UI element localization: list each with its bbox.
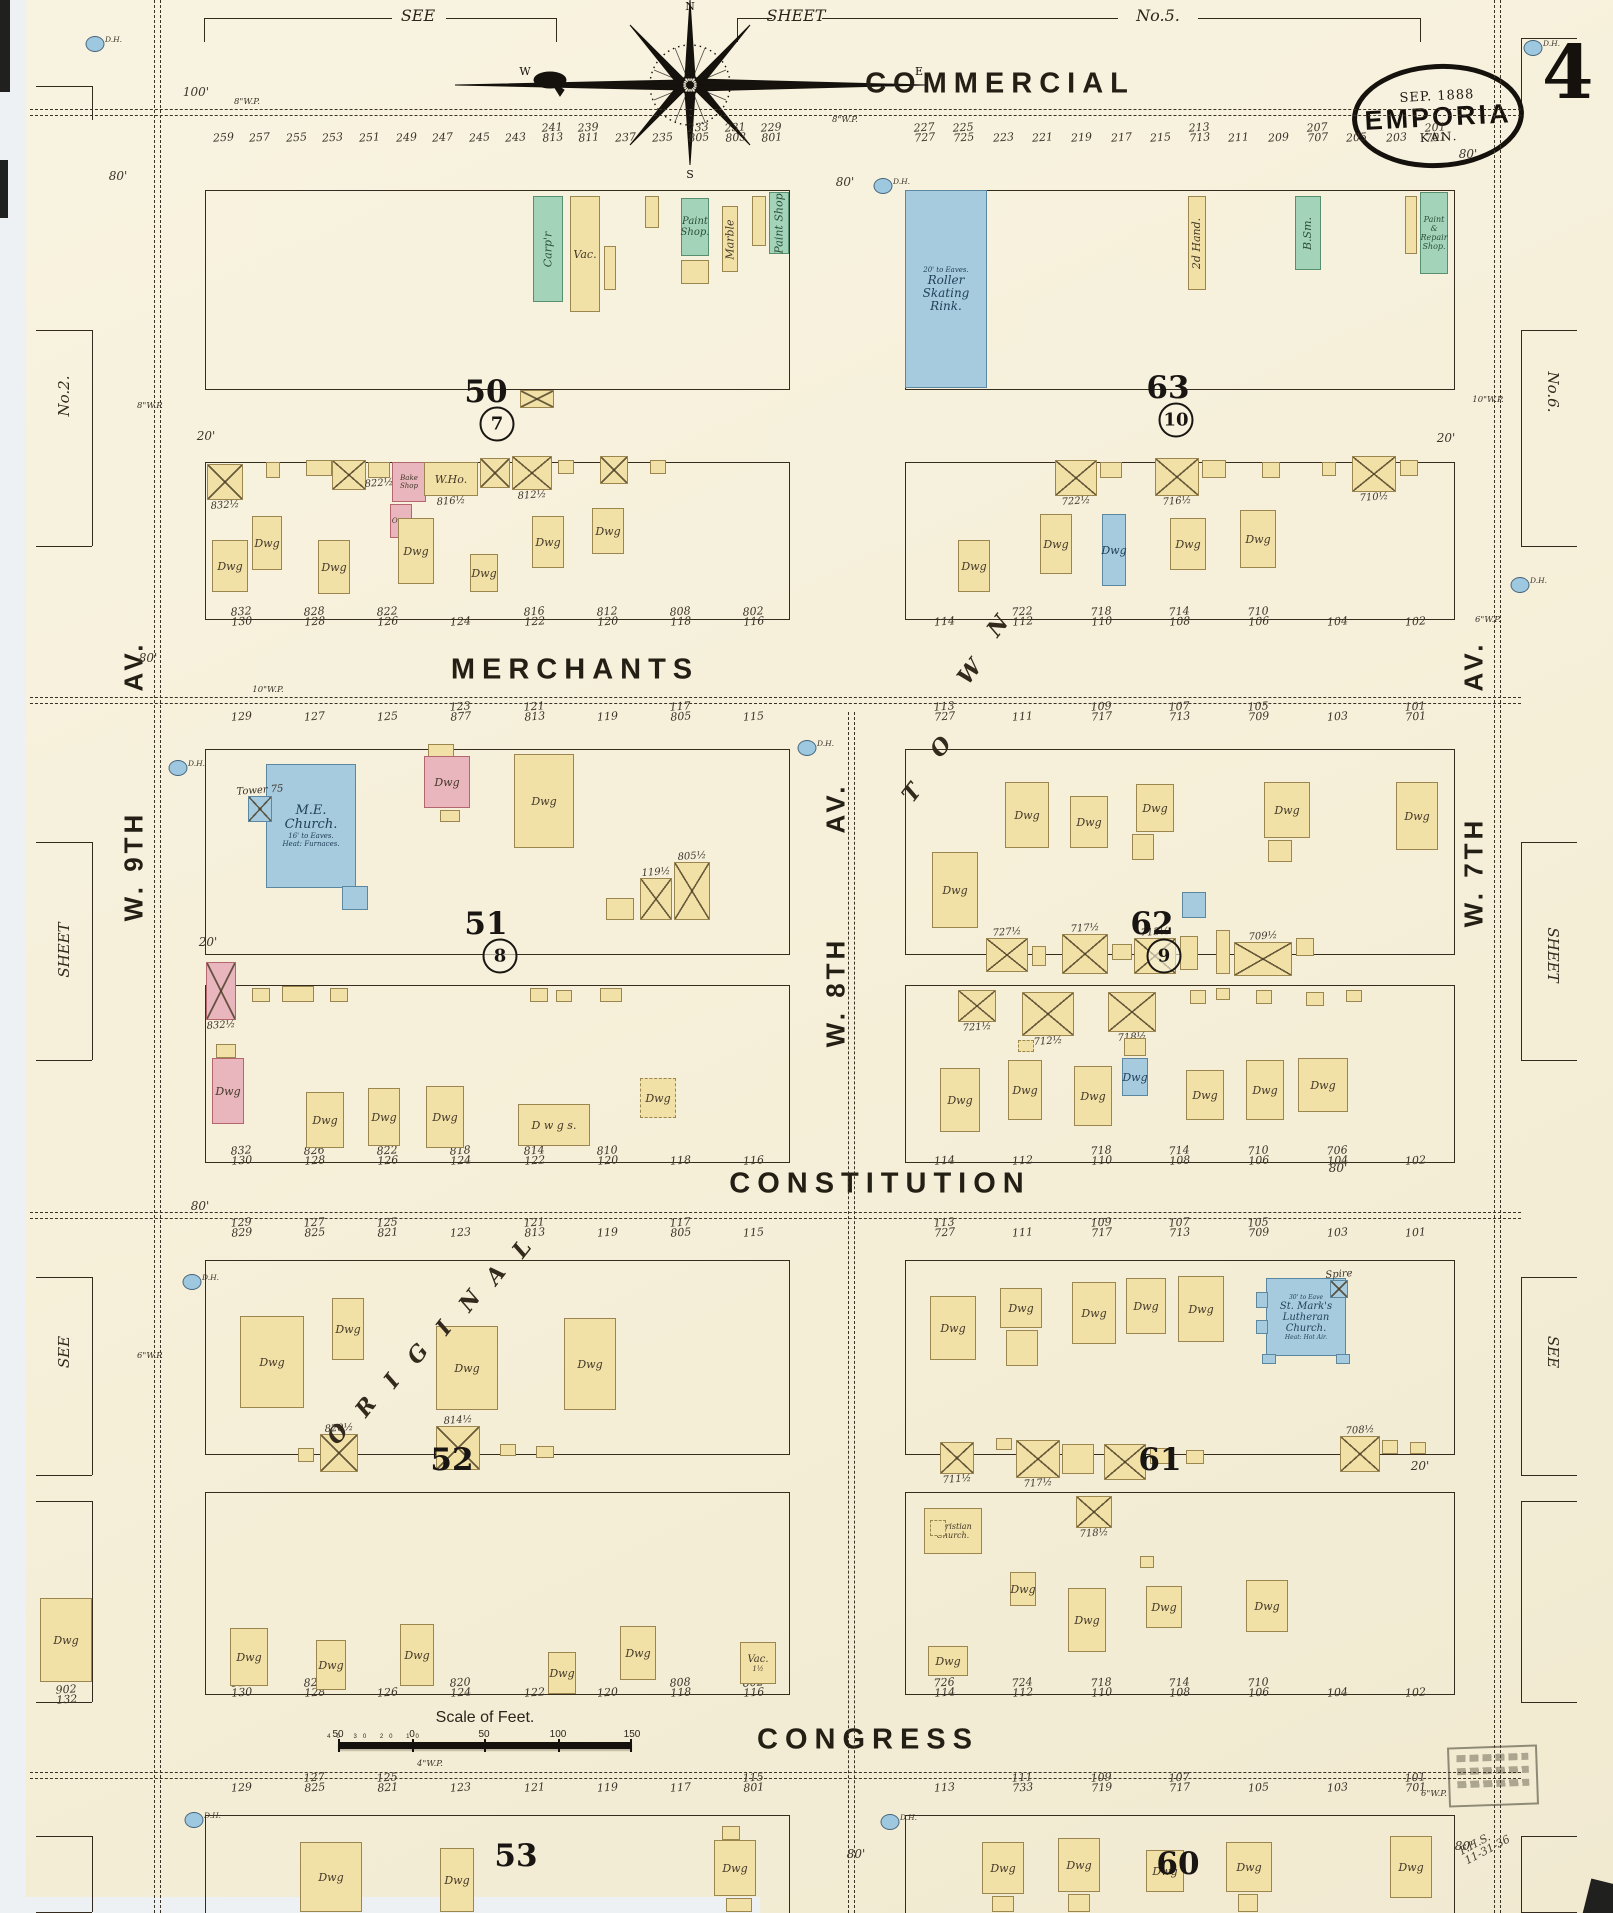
double-hydrant-label: D.H.: [204, 1811, 221, 1820]
dimension-label: 80': [847, 1847, 866, 1861]
address-number: 129: [231, 711, 253, 722]
water-pipe-label: 8"W.P.: [234, 97, 260, 107]
building: [1018, 1040, 1034, 1052]
building-address-label: 718½: [1079, 1527, 1108, 1540]
building: [1062, 1444, 1094, 1474]
building-address-label: 712½: [1033, 1035, 1062, 1048]
building-address-label: 721½: [962, 1021, 991, 1034]
address-number: 243: [505, 132, 527, 143]
street-label-merchants: MERCHANTS: [451, 654, 699, 687]
address-number: 255: [286, 132, 308, 143]
building-dwg: Dwg: [514, 754, 574, 848]
dimension-label: 20': [1437, 431, 1456, 445]
building: [1296, 938, 1314, 956]
building-label: Church.: [285, 818, 338, 832]
x-mark: [207, 963, 235, 1019]
x-mark: [249, 797, 271, 821]
building-label: W.Ho.: [435, 474, 467, 485]
compass-w: W: [519, 65, 531, 78]
building-address-label: 816½: [436, 495, 465, 508]
address-number: 808118: [669, 606, 691, 627]
edge-bracket-left-tick: [36, 1060, 92, 1061]
building-label: Dwg: [935, 1656, 960, 1667]
building-address-label: 832½: [206, 1019, 235, 1032]
address-number: 219: [1071, 132, 1093, 143]
building: [1216, 930, 1230, 974]
building-dwg: Dwg: [928, 1646, 968, 1676]
outbuilding: [332, 460, 366, 490]
building-dwg: Dwg: [316, 1640, 346, 1690]
building-label: Paint &: [1421, 215, 1447, 233]
building-label: Dwg: [940, 1323, 965, 1334]
building-dwg: Dwg: [714, 1840, 756, 1896]
double-hydrant-dot: [798, 740, 817, 756]
address-number: 714108: [1169, 1677, 1191, 1698]
address-number: 129: [231, 1782, 253, 1793]
water-pipe-label: 4"W.P.: [417, 1759, 443, 1769]
address-number: 109717: [1090, 701, 1112, 722]
address-number: 810120: [596, 1145, 618, 1166]
building-label: Paint: [682, 216, 708, 227]
building-label: 30' to Eave: [1289, 1294, 1323, 1301]
building-label: Vac.: [573, 249, 596, 260]
double-hydrant-dot: [1511, 577, 1530, 593]
building-label: Dwg: [312, 1115, 337, 1126]
building-label: Vac.: [747, 1654, 768, 1665]
building-label: Dwg: [1151, 1602, 1176, 1613]
building-dwg: Dwg: [1246, 1580, 1288, 1632]
building: [530, 988, 548, 1002]
building-label: Dwg: [1043, 539, 1068, 550]
address-number: 225725: [953, 122, 975, 143]
building-label: Dwg: [432, 1112, 457, 1123]
building-dwg: Dwg: [1396, 782, 1438, 850]
building-label: Dwg: [1398, 1862, 1423, 1873]
building-paint-shop: PaintShop.: [681, 198, 709, 256]
edge-bracket-right: [1521, 842, 1522, 1060]
outbuilding: 832½: [206, 962, 236, 1020]
address-row: 114112718110714108710106706104102: [905, 1142, 1455, 1166]
x-mark: [959, 991, 995, 1021]
x-mark: [1353, 457, 1395, 491]
outbuilding: 708½: [1340, 1436, 1380, 1472]
building-label: Roller: [928, 274, 965, 287]
address-number: 114: [933, 1155, 955, 1166]
building-dwg: Dwg: [400, 1624, 434, 1686]
building-label: Dwg: [947, 1095, 972, 1106]
address-number: 125821: [377, 1217, 399, 1238]
building-label: Dwg: [1101, 545, 1126, 556]
address-number: 223: [992, 132, 1014, 143]
address-number: 102: [1405, 1687, 1427, 1698]
edge-label-see: SEE: [55, 1336, 73, 1368]
building: [342, 886, 368, 910]
building-address-label: 717½: [1023, 1477, 1052, 1490]
building: [1006, 1330, 1038, 1366]
building-dwg: Dwg: [398, 518, 434, 584]
building: [1032, 946, 1046, 966]
building-label: Dwg: [215, 1086, 240, 1097]
building-dwg: Dwg: [1246, 1060, 1284, 1120]
outbuilding: 717½: [1016, 1440, 1060, 1478]
scan-mark: [0, 0, 10, 92]
building: [216, 1044, 236, 1058]
block-outline-51-lower: [205, 985, 790, 1163]
building: [650, 460, 666, 474]
building: [1100, 462, 1122, 478]
edge-label-no6: No.6.: [1544, 372, 1562, 413]
address-number: 107713: [1169, 1217, 1191, 1238]
building-label: Rink.: [930, 300, 962, 313]
building: [266, 462, 280, 478]
building: [1124, 1038, 1146, 1056]
address-number: 107717: [1169, 1772, 1191, 1793]
outbuilding: 805½: [674, 862, 710, 920]
edge-bracket-right: [1521, 330, 1522, 546]
building-dwg: Dwg: [440, 1848, 474, 1912]
edge-bracket-left-tick: [36, 1501, 92, 1502]
building-address-label: 722½: [1061, 495, 1090, 508]
building-dwg: Dwg: [982, 1842, 1024, 1894]
building-label: Bake: [400, 474, 418, 482]
x-mark: [1023, 993, 1073, 1035]
double-hydrant-label: D.H.: [105, 35, 122, 44]
building: [1400, 460, 1418, 476]
building-label: D w g s.: [532, 1120, 577, 1131]
water-pipe-label: 10"W.P.: [252, 685, 283, 695]
x-mark: [987, 939, 1027, 971]
building-label: Dwg: [1274, 805, 1299, 816]
street-line-w7th: [1494, 0, 1501, 1913]
plat-letter: W: [952, 654, 988, 689]
edge-bracket-right-tick: [1521, 842, 1577, 843]
address-number: 201701: [1424, 122, 1446, 143]
building-label: 1½: [752, 1665, 763, 1673]
building-label: Heat: Hot Air.: [1285, 1334, 1327, 1341]
address-number: 724112: [1012, 1677, 1034, 1698]
building-dwg: Dwg: [1264, 782, 1310, 838]
street-label-w9th: W. 9TH: [119, 811, 150, 922]
address-number: 104: [1326, 1687, 1348, 1698]
address-row: 129127825125821123121119117115801: [205, 1769, 790, 1793]
address-number: 101701: [1404, 701, 1426, 722]
address-number: 718110: [1090, 1677, 1112, 1698]
building: [1068, 1894, 1090, 1912]
scan-edge-left: [0, 0, 26, 1913]
address-number: 102: [1405, 1155, 1427, 1166]
address-number: 816122: [523, 606, 545, 627]
address-number: 209: [1267, 132, 1289, 143]
outbuilding: 119½: [640, 878, 672, 920]
address-number: 123877: [450, 701, 472, 722]
building: [1202, 460, 1226, 478]
x-mark: [208, 465, 242, 499]
block-number-61: 61: [1138, 1442, 1181, 1478]
building: [930, 1520, 946, 1536]
double-hydrant-label: D.H.: [202, 1273, 219, 1282]
top-bracket: [1198, 18, 1420, 19]
dimension-label: 80': [1459, 147, 1478, 161]
building-dwg: Dwg: [1126, 1278, 1166, 1334]
address-number: 718110: [1090, 606, 1112, 627]
building-dwg: Dwg: [426, 1086, 464, 1148]
address-number: 105: [1248, 1782, 1270, 1793]
building-label: Dwg: [1188, 1304, 1213, 1315]
address-number: 215: [1150, 132, 1172, 143]
address-number: 710106: [1247, 1145, 1269, 1166]
building: [1336, 1354, 1350, 1364]
building-label: Dwg: [1122, 1072, 1147, 1083]
street-label-av: AV.: [821, 782, 852, 833]
building-label: Dwg: [1133, 1301, 1158, 1312]
building-label: Dwg: [625, 1648, 650, 1659]
address-number: 718110: [1090, 1145, 1112, 1166]
address-number: 233805: [687, 122, 709, 143]
top-ref-no5: No.5.: [1136, 6, 1180, 25]
edge-bracket-right-tick: [1521, 546, 1577, 547]
building-paint-shop: Paint Shop: [769, 192, 789, 254]
dimension-label: 80': [139, 651, 158, 665]
address-number: 111733: [1012, 1772, 1034, 1793]
building-label: Dwg: [53, 1635, 78, 1646]
edge-label-see: SEE: [1544, 1336, 1562, 1368]
scale-tick-label: 100: [550, 1729, 567, 1740]
building-label: M.E.: [295, 804, 326, 818]
double-hydrant-dot: [169, 760, 188, 776]
address-row: 902132: [36, 1681, 96, 1705]
outbuilding: 721½: [958, 990, 996, 1022]
edge-label-sheet: SHEET: [1544, 927, 1562, 982]
building-label: Dwg: [1192, 1090, 1217, 1101]
address-number: 826128: [304, 1145, 326, 1166]
building-dwg: Dwg: [1068, 1588, 1106, 1652]
building-label: Shop: [400, 482, 418, 490]
building-label: Dwg: [1142, 803, 1167, 814]
block-number-50: 50: [464, 374, 507, 410]
block-outline-52-lower: [205, 1492, 790, 1695]
edge-bracket-right-tick: [1521, 1277, 1577, 1278]
building: [996, 1438, 1012, 1450]
building-dwg: Dwg: [230, 1628, 268, 1686]
building: [645, 196, 659, 228]
building: [1262, 462, 1280, 478]
building: [1140, 1556, 1154, 1568]
building-label: Paint Shop: [774, 193, 785, 253]
address-number: 109719: [1090, 1772, 1112, 1793]
building-label: Dwg: [404, 1650, 429, 1661]
building-dwg: Dwg: [306, 1092, 344, 1148]
building-address-label: 832½: [210, 499, 239, 512]
street-label-w7th: W. 7TH: [1459, 817, 1490, 928]
building: [1262, 1354, 1276, 1364]
building-label: Shop.: [1422, 242, 1445, 251]
scale-title: Scale of Feet.: [436, 1709, 535, 1727]
building-address-label: 822½: [364, 477, 393, 490]
address-number: 115801: [742, 1772, 764, 1793]
address-number: 822126: [377, 1145, 399, 1166]
address-number: 221: [1032, 132, 1054, 143]
address-row: 726114724112718110714108710106104102: [905, 1674, 1455, 1698]
x-mark: [1056, 461, 1096, 495]
building-label: Dwg: [434, 777, 459, 788]
building-address-label: Spire: [1325, 1268, 1353, 1281]
dimension-label: 100': [183, 85, 209, 99]
building-address-label: 710½: [1359, 491, 1388, 504]
circled-number-9: 9: [1147, 939, 1182, 974]
building-label: Dwg: [1404, 811, 1429, 822]
circled-number-8: 8: [483, 939, 518, 974]
building-dwg: Dwg: [1136, 784, 1174, 832]
outbuilding: [520, 390, 554, 408]
building: [722, 1826, 740, 1840]
sanborn-map-sheet: SEE SHEET No.5. 4 SEP. 1888 EMPORIA KAN.: [0, 0, 1613, 1913]
outbuilding: 711½: [940, 1442, 974, 1474]
building-address-label: 812½: [517, 489, 546, 502]
building-label: Dwg: [1014, 810, 1039, 821]
building: [1216, 988, 1230, 1000]
street-line-w8th: [848, 712, 855, 1913]
address-number: 229801: [761, 122, 783, 143]
edge-bracket-right-tick: [1521, 1475, 1577, 1476]
double-hydrant-label: D.H.: [893, 177, 910, 186]
corner-bracket: [36, 86, 92, 87]
address-number: 127825: [304, 1772, 326, 1793]
water-pipe-label: 6"W.P.: [1475, 615, 1501, 625]
building-vac: Vac.: [570, 196, 600, 312]
double-hydrant-dot: [183, 1274, 202, 1290]
address-number: 121813: [523, 701, 545, 722]
dimension-label: 80': [836, 175, 855, 189]
building-label: St. Mark's: [1280, 1301, 1332, 1312]
double-hydrant-dot: [874, 178, 893, 194]
x-mark: [1331, 1281, 1347, 1297]
edge-bracket-left-tick: [36, 842, 92, 843]
address-number: 119: [596, 711, 618, 722]
address-number: 119: [596, 1782, 618, 1793]
block-number-60: 60: [1156, 1846, 1199, 1882]
top-ref-see: SEE: [401, 6, 435, 25]
address-number: 115: [743, 711, 765, 722]
building-dwg: Dwg: [318, 540, 350, 594]
building-label: Dwg: [722, 1863, 747, 1874]
scale-tick-label: 50: [478, 1729, 489, 1740]
building-dwg: Dwg: [620, 1626, 656, 1680]
scale-tick-label: 0: [409, 1729, 415, 1740]
corner-bracket: [1521, 38, 1522, 108]
address-number: 116: [743, 1155, 765, 1166]
address-number: 239811: [578, 122, 600, 143]
circled-number-7: 7: [480, 407, 515, 442]
building-dwg: Dwg: [1146, 1586, 1182, 1628]
address-number: 103: [1326, 711, 1348, 722]
building-label: Dwg: [1175, 539, 1200, 550]
building: [1382, 1440, 1398, 1454]
building-address-label: 716½: [1162, 495, 1191, 508]
building: [298, 1448, 314, 1462]
building: [1405, 196, 1417, 254]
address-number: 111: [1012, 711, 1034, 722]
building: [536, 1446, 554, 1458]
address-number: 125821: [377, 1772, 399, 1793]
building-label: Dwg: [1236, 1862, 1261, 1873]
street-line-w9th: [154, 0, 161, 1913]
building-label: Dwg: [444, 1875, 469, 1886]
address-number: 812120: [596, 606, 618, 627]
building-dwg: Dwg: [1010, 1572, 1036, 1606]
building-address-label: 717½: [1070, 922, 1099, 935]
building-label: Repair: [1420, 233, 1447, 242]
address-number: 714108: [1169, 606, 1191, 627]
building: [992, 1896, 1014, 1912]
building: [558, 460, 574, 474]
building-label: Dwg: [549, 1668, 574, 1679]
building-label: Dwg: [1310, 1080, 1335, 1091]
address-number: 207707: [1306, 122, 1328, 143]
scale-tick-label: 50: [332, 1729, 343, 1740]
address-row: 2277272257252232212192172152137132112092…: [905, 119, 1455, 143]
building: [600, 988, 622, 1002]
double-hydrant-label: D.H.: [900, 1813, 917, 1822]
address-number: 710106: [1247, 1677, 1269, 1698]
address-number: 105709: [1247, 701, 1269, 722]
address-number: 247: [432, 132, 454, 143]
building-label: 16' to Eaves.: [288, 832, 334, 840]
address-number: 125: [377, 711, 399, 722]
building-label: Dwg: [335, 1324, 360, 1335]
edge-bracket-right-tick: [1521, 330, 1577, 331]
compass-n: N: [685, 0, 695, 13]
address-number: 710106: [1247, 606, 1269, 627]
building: [1268, 840, 1292, 862]
building-b-sm: B.Sm.: [1295, 196, 1321, 270]
block-number-51: 51: [464, 906, 507, 942]
building: [1256, 1320, 1268, 1334]
dimension-label: 20': [197, 429, 216, 443]
building: 822½: [368, 462, 390, 478]
building-label: Shop.: [681, 227, 710, 238]
x-mark: [1077, 1497, 1111, 1527]
building: [1346, 990, 1362, 1002]
building-dwg: Dwg: [424, 756, 470, 808]
building-dwg: Dwg: [212, 540, 248, 592]
address-number: 117805: [669, 701, 691, 722]
outbuilding: [480, 458, 510, 488]
street-line-commercial: [30, 109, 1521, 116]
street-label-w8th: W. 8TH: [821, 937, 852, 1048]
address-number: 820124: [450, 1677, 472, 1698]
building-label: Dwg: [1010, 1584, 1035, 1595]
x-mark: [1235, 943, 1291, 975]
building-dwg: Dwg: [1000, 1288, 1042, 1328]
building-label: Lutheran: [1283, 1312, 1330, 1323]
outbuilding: 718½: [1108, 992, 1156, 1032]
building-dwg: Dwg: [40, 1598, 92, 1682]
address-number: 231803: [724, 122, 746, 143]
scale-bar: [338, 1742, 632, 1749]
double-hydrant-dot: [86, 36, 105, 52]
building-dwg: Dwg: [368, 1088, 400, 1146]
street-label-av: AV.: [119, 640, 150, 691]
building-vac-1: Vac.1½: [740, 1642, 776, 1684]
edge-bracket-left: [92, 1836, 93, 1912]
outbuilding: 722½: [1055, 460, 1097, 496]
building-dwg: Dwg: [1102, 514, 1126, 586]
building-label: Dwg: [961, 561, 986, 572]
top-bracket: [204, 18, 392, 19]
street-label-constitution: CONSTITUTION: [729, 1168, 1031, 1201]
address-number: 205: [1346, 132, 1368, 143]
address-number: 722112: [1012, 606, 1034, 627]
